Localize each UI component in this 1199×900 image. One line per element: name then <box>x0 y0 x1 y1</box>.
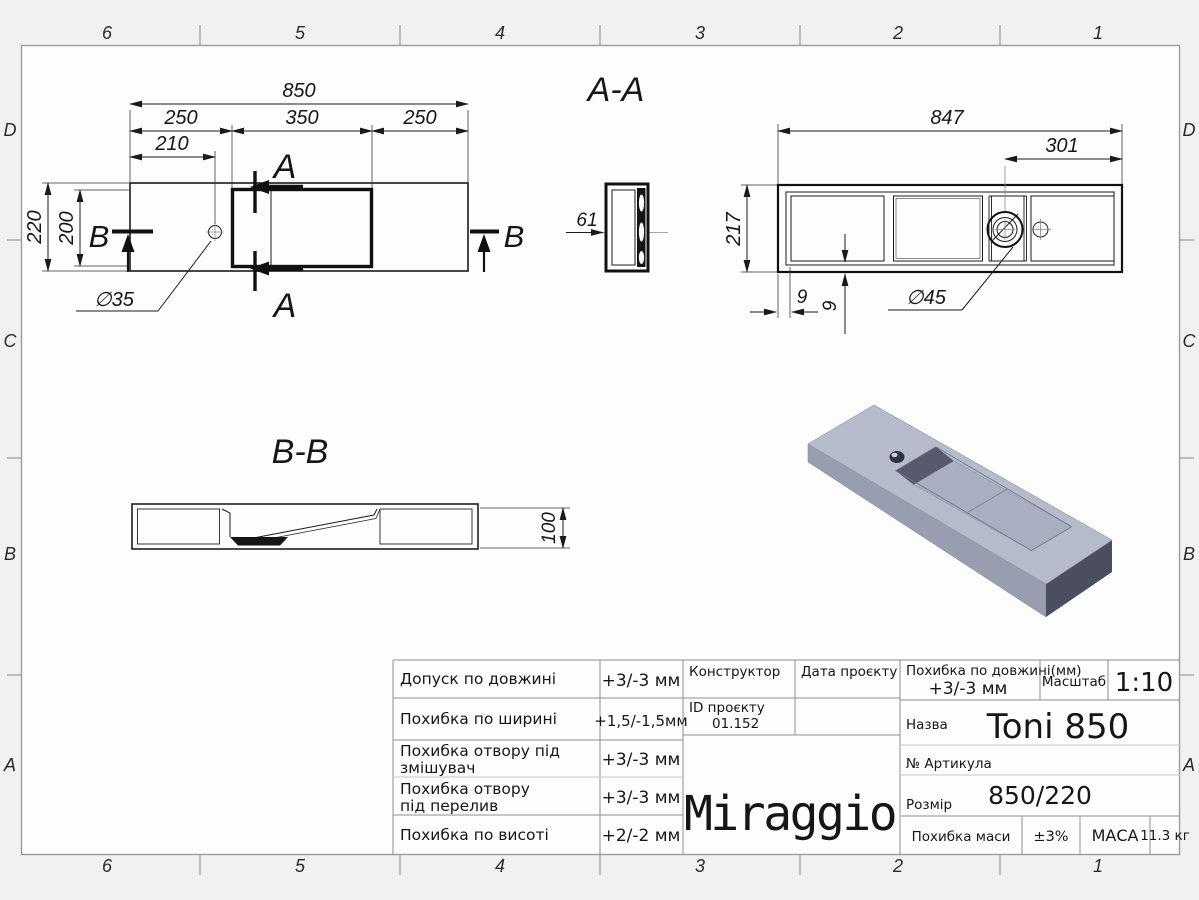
tolerance-label: Похибка по ширині <box>400 710 557 728</box>
tolerance-value: +1,5/-1,5мм <box>594 712 687 730</box>
zone-col-bottom: 5 <box>295 856 306 876</box>
zone-col-bottom: 3 <box>695 856 705 876</box>
zone-col-top: 5 <box>295 23 306 43</box>
dim-height-100: 100 <box>539 512 560 544</box>
scale-label: Масштаб <box>1042 674 1106 690</box>
zone-col-top: 3 <box>695 23 705 43</box>
dim-overall-850: 850 <box>282 80 315 102</box>
constructor-label: Конструктор <box>689 664 780 680</box>
tolerance-label: Похибка отвору під <box>400 742 560 760</box>
zone-row-left: C <box>4 331 18 351</box>
tolerance-value: +3/-3 мм <box>602 750 681 770</box>
dim-depth-220: 220 <box>24 210 46 244</box>
mass-label: МАСА <box>1092 826 1139 845</box>
dim-overall-847: 847 <box>930 107 964 129</box>
cut-letter-b-left: B <box>89 219 110 254</box>
brand-logo: Miraggio <box>684 786 895 842</box>
dim-middle-350: 350 <box>285 107 318 129</box>
zone-row-left: D <box>4 120 17 140</box>
mass-value: 11.3 кг <box>1140 828 1190 844</box>
zone-col-bottom: 6 <box>102 856 113 876</box>
project-id-value: 01.152 <box>712 716 759 732</box>
project-id-label: ID проєкту <box>689 700 765 716</box>
tolerance-label: змішувач <box>400 759 475 777</box>
dim-hole-dia-35: ∅35 <box>94 289 135 311</box>
size-value: 850/220 <box>988 781 1092 810</box>
dim-width-217: 217 <box>723 211 745 246</box>
zone-col-top: 2 <box>892 23 903 43</box>
dim-hole-offset-210: 210 <box>154 133 188 155</box>
tolerance-value: +3/-3 мм <box>602 671 681 691</box>
tolerance-value: +2/-2 мм <box>602 826 681 846</box>
tolerance-label: під перелив <box>400 797 498 815</box>
zone-row-right: D <box>1183 120 1196 140</box>
section-aa-title: A-A <box>586 71 645 109</box>
tolerance-label: Допуск по довжині <box>400 670 556 688</box>
project-date-label: Дата проєкту <box>801 664 897 680</box>
bottom-outline <box>778 185 1122 272</box>
zone-col-bottom: 2 <box>892 856 903 876</box>
dim-right-250: 250 <box>402 107 436 129</box>
tolerance-label: Похибка по висоті <box>400 826 549 844</box>
scale-value: 1:10 <box>1115 668 1173 698</box>
zone-row-left: A <box>3 755 16 775</box>
dim-drain-dia-45: ∅45 <box>906 287 947 309</box>
dim-depth-inner-200: 200 <box>56 211 78 245</box>
tolerance-value: +3/-3 мм <box>602 788 681 808</box>
drain-cross-section <box>230 537 288 546</box>
drawing-sheet: 6 5 4 3 2 1 6 5 4 3 2 1 D C B A D C B A <box>0 0 1199 900</box>
zone-row-right: C <box>1183 331 1197 351</box>
zone-row-right: A <box>1182 755 1195 775</box>
zone-col-top: 6 <box>102 23 113 43</box>
length-tolerance-value: +3/-3 мм <box>929 679 1008 699</box>
article-label: № Артикула <box>906 756 992 772</box>
drain-hole <box>988 212 1023 247</box>
zone-row-left: B <box>4 544 16 564</box>
zone-col-top: 4 <box>495 23 505 43</box>
section-bb-title: B-B <box>272 433 329 471</box>
section-bb-profile <box>132 504 478 549</box>
product-name: Toni 850 <box>986 707 1130 747</box>
name-label: Назва <box>906 717 948 733</box>
dim-drain-offset-301: 301 <box>1045 135 1078 157</box>
zone-row-right: B <box>1183 544 1195 564</box>
size-label: Розмір <box>906 797 952 813</box>
cut-letter-b-right: B <box>504 219 525 254</box>
zone-col-bottom: 1 <box>1093 856 1103 876</box>
tolerance-label: Похибка отвору <box>400 780 530 798</box>
zone-col-bottom: 4 <box>495 856 505 876</box>
render-faucet-hole <box>890 451 905 463</box>
dim-bottom-wall-9: 9 <box>820 300 841 311</box>
dim-left-250: 250 <box>163 107 197 129</box>
section-letter-a-top: A <box>272 148 297 186</box>
zone-col-top: 1 <box>1093 23 1103 43</box>
mass-tolerance-label: Похибка маси <box>912 829 1011 845</box>
section-letter-a-bottom: A <box>272 287 297 325</box>
mass-tolerance-value: ±3% <box>1033 829 1068 845</box>
cad-drawing-canvas: 6 5 4 3 2 1 6 5 4 3 2 1 D C B A D C B A <box>0 0 1199 900</box>
dim-wall-9: 9 <box>797 287 808 308</box>
dim-thickness-61: 61 <box>576 210 597 231</box>
